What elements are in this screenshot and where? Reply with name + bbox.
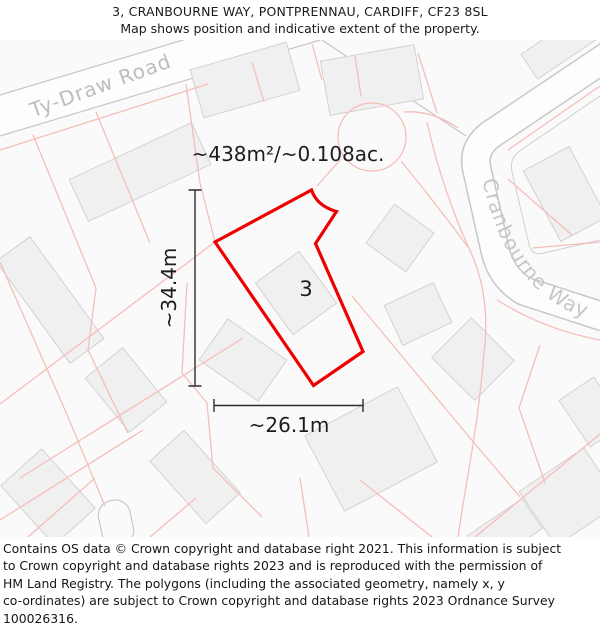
report-header: 3, CRANBOURNE WAY, PONTPRENNAU, CARDIFF,… — [0, 0, 600, 40]
map-container: Ty-Draw Road Cranbourne Way ~438m²/~0.10… — [0, 40, 600, 537]
footer-line: HM Land Registry. The polygons (includin… — [3, 575, 594, 592]
property-address: 3, CRANBOURNE WAY, PONTPRENNAU, CARDIFF,… — [0, 3, 600, 20]
footer-line: to Crown copyright and database rights 2… — [3, 557, 594, 574]
footer-line: 100026316. — [3, 610, 594, 627]
footer-line: co-ordinates) are subject to Crown copyr… — [3, 592, 594, 609]
plot-number-label: 3 — [299, 277, 312, 301]
dimension-height-label: ~34.4m — [157, 248, 181, 329]
property-map: Ty-Draw Road Cranbourne Way ~438m²/~0.10… — [0, 40, 600, 537]
area-label: ~438m²/~0.108ac. — [192, 142, 385, 166]
footer-line: Contains OS data © Crown copyright and d… — [3, 540, 594, 557]
copyright-footer: Contains OS data © Crown copyright and d… — [0, 537, 600, 625]
map-description: Map shows position and indicative extent… — [0, 20, 600, 37]
dimension-width-label: ~26.1m — [249, 413, 330, 437]
